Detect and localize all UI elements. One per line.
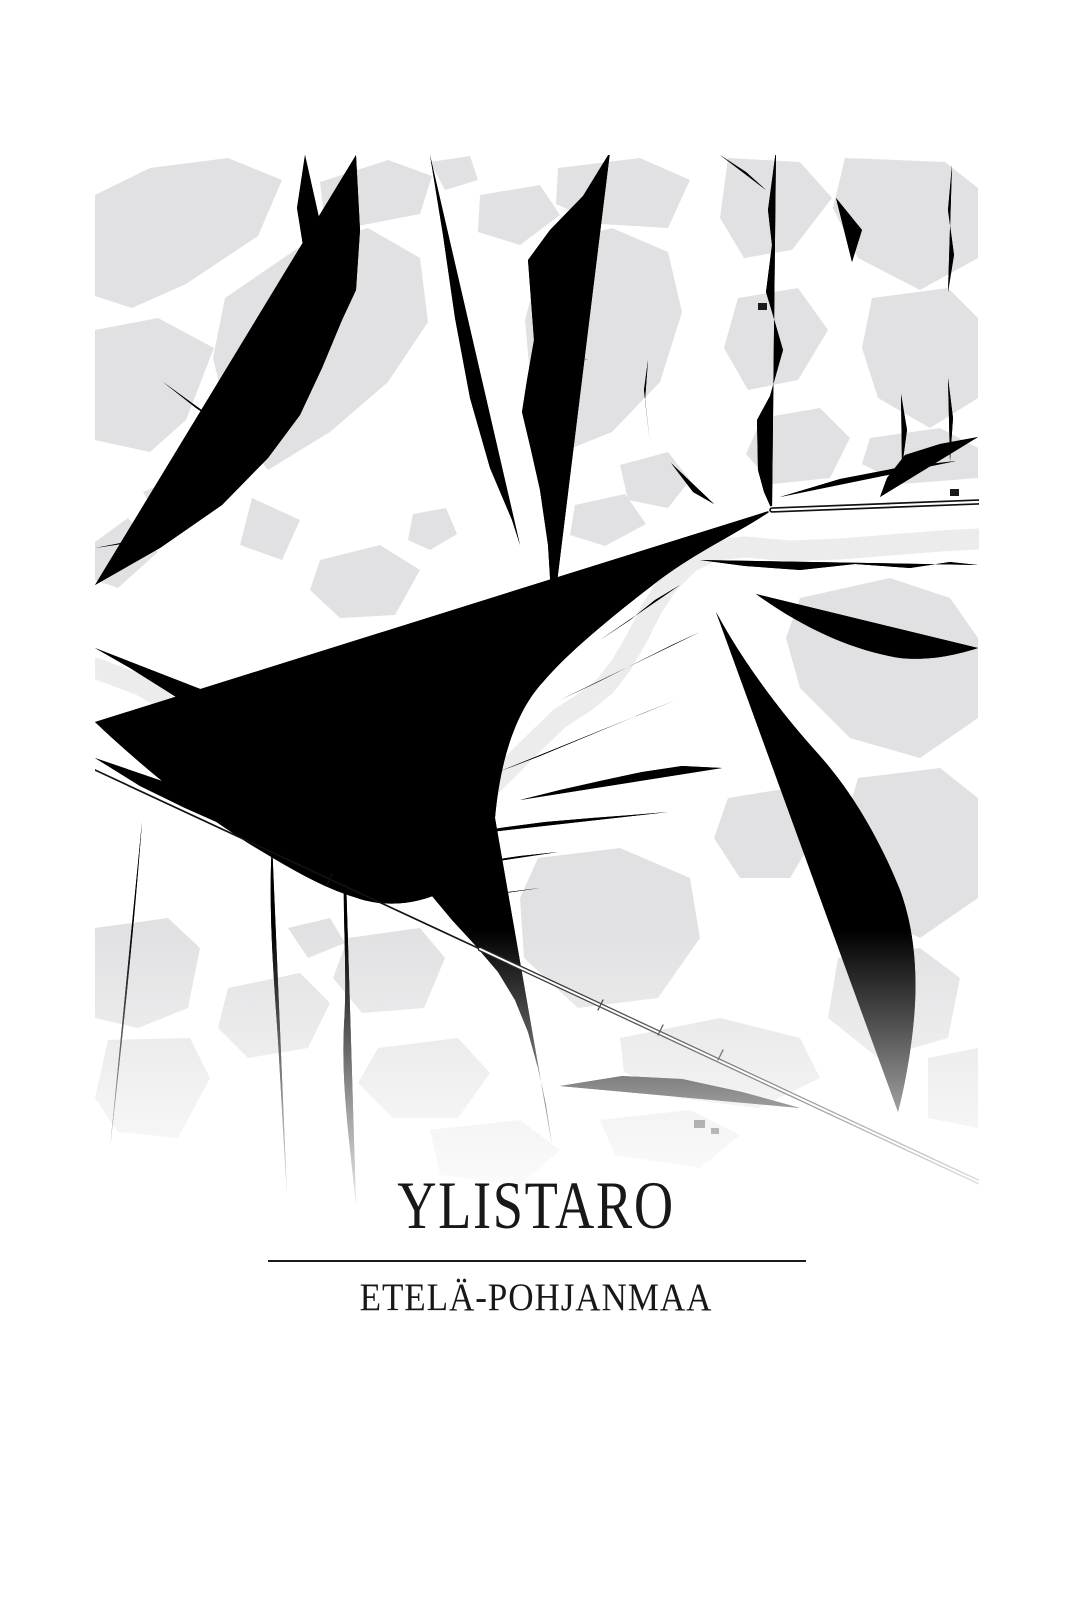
region-subtitle: ETELÄ-POHJANMAA (54, 1274, 1019, 1322)
map-canvas (95, 155, 979, 1290)
divider-line (268, 1260, 806, 1262)
dual-carriageway (772, 502, 978, 510)
city-title: YLISTARO (107, 1165, 965, 1245)
map-poster: YLISTARO ETELÄ-POHJANMAA (0, 0, 1072, 1600)
